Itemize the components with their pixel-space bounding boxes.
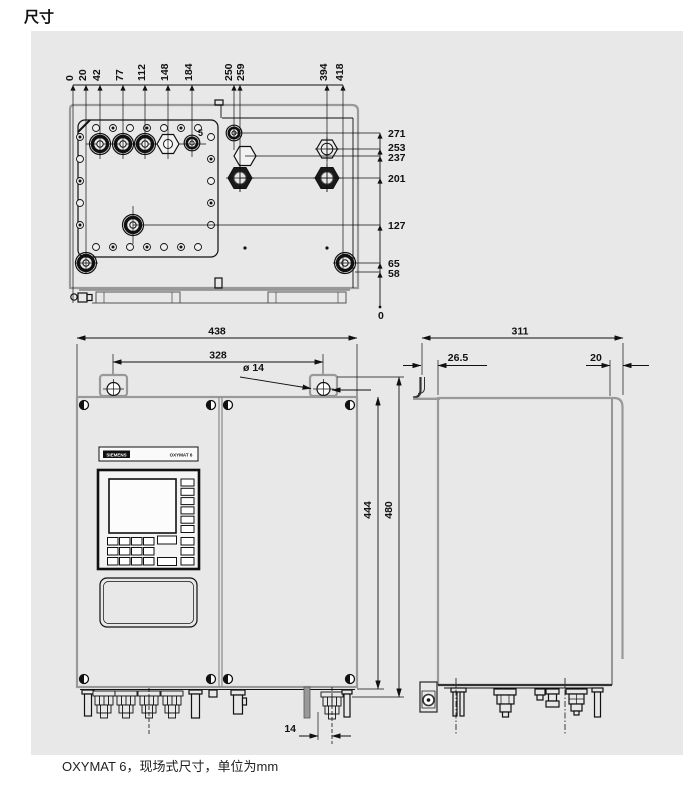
model-label: OXYMAT 6 [170, 453, 193, 458]
dim-bracket-offset: 26.5 [448, 352, 469, 364]
h-dim-77: 77 [114, 69, 126, 81]
dim-gland-offset: 14 [284, 723, 296, 735]
dim-hole-diameter: ø 14 [243, 362, 264, 374]
dim-overall-height: 480 [383, 501, 395, 519]
h-dim-20: 20 [77, 69, 89, 81]
display-screen [109, 479, 176, 533]
h-dim-112: 112 [136, 64, 148, 81]
v-dim-58: 58 [388, 268, 400, 280]
technical-drawing: 5 [0, 0, 699, 794]
dim-body-height: 444 [362, 501, 374, 519]
h-dim-184: 184 [183, 63, 195, 81]
dim-mount-spacing: 328 [209, 350, 227, 362]
gland-count-label: 5 [198, 128, 203, 138]
v-dim-127: 127 [388, 220, 406, 232]
v-dim-0: 0 [378, 310, 384, 322]
h-dim-418: 418 [334, 63, 346, 81]
dim-rear-panel: 20 [590, 352, 602, 364]
h-dim-42: 42 [91, 69, 103, 81]
nameplate: SIEMENS OXYMAT 6 [99, 447, 198, 461]
h-dim-0: 0 [64, 75, 76, 81]
v-dim-237: 237 [388, 152, 406, 164]
h-dim-250: 250 [223, 63, 235, 81]
h-dim-394: 394 [318, 63, 330, 81]
dim-overall-width: 438 [208, 326, 226, 338]
mount-tab-right [310, 375, 337, 399]
bottom-bracket [420, 682, 437, 712]
dimension-drawing-page: 尺寸 [0, 0, 699, 794]
mount-tab-left [100, 375, 127, 399]
v-dim-201: 201 [388, 173, 406, 185]
keypad [108, 536, 195, 566]
h-dim-259: 259 [235, 63, 247, 81]
brand-logo: SIEMENS [106, 453, 126, 458]
dim-overall-depth: 311 [512, 326, 529, 338]
h-dim-148: 148 [159, 63, 171, 81]
figure-caption: OXYMAT 6，现场式尺寸，单位为mm [62, 756, 278, 775]
v-dim-271: 271 [388, 128, 406, 140]
operator-panel [98, 470, 199, 569]
